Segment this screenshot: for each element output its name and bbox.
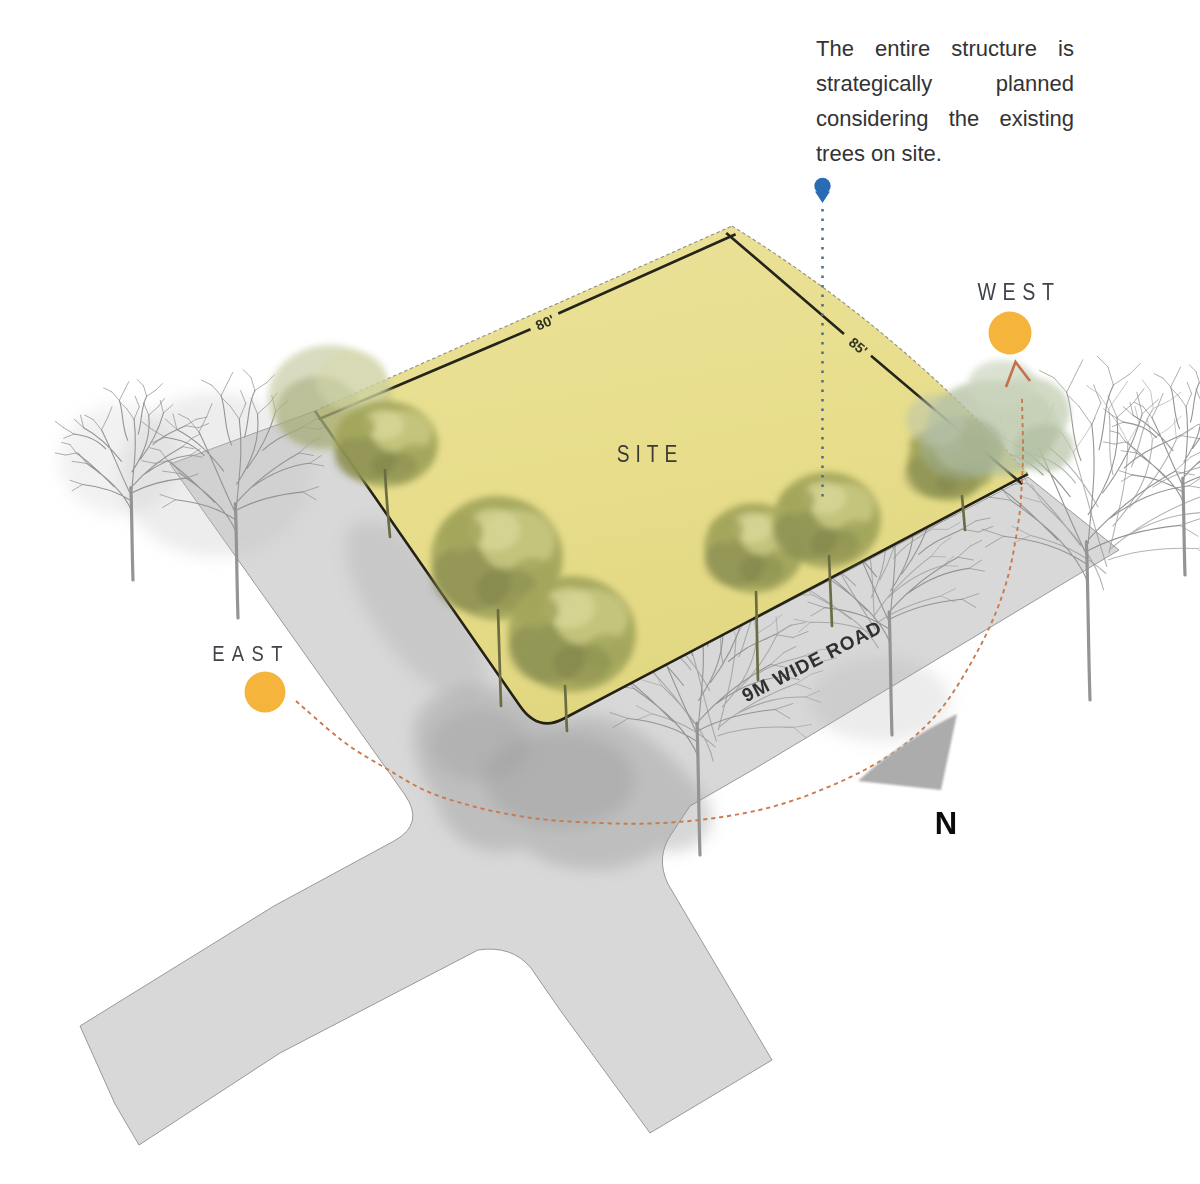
svg-text:SITE: SITE bbox=[617, 440, 684, 468]
svg-text:EAST: EAST bbox=[212, 640, 290, 665]
svg-text:N: N bbox=[935, 806, 957, 841]
svg-text:WEST: WEST bbox=[977, 278, 1060, 305]
